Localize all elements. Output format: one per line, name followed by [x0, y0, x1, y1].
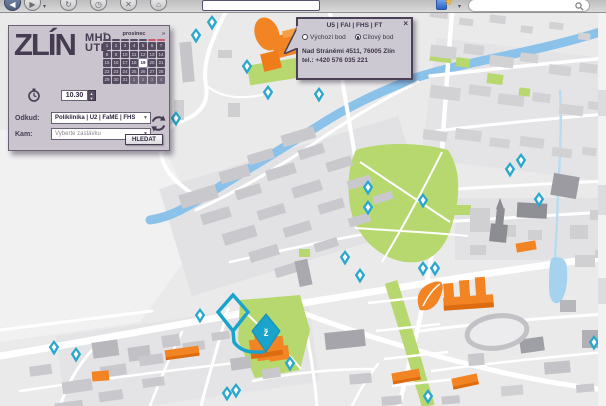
radio-start-icon[interactable] — [302, 34, 308, 40]
calendar-day[interactable]: 21 — [157, 59, 165, 67]
calendar-day[interactable]: 13 — [148, 51, 156, 59]
calendar-weekday-row — [103, 39, 165, 41]
favorites-caret-icon[interactable]: ▾ — [458, 3, 461, 10]
radio-end-option[interactable]: Cílový bod — [355, 34, 394, 41]
clock-icon — [27, 88, 41, 103]
time-row: 10.30 ▲▼ — [47, 90, 96, 101]
calendar-day[interactable]: 1 — [103, 42, 111, 50]
calendar-day[interactable]: 3 — [148, 76, 156, 84]
radio-start-option[interactable]: Výchozí bod — [302, 34, 346, 41]
swap-directions-button[interactable] — [150, 114, 167, 133]
calendar-day[interactable]: 30 — [112, 76, 120, 84]
calendar-day[interactable]: 25 — [130, 68, 138, 76]
star-icon: ★ — [444, 0, 453, 8]
from-select[interactable]: Poliklinika | U2 | FaME | FHS ▼ — [51, 112, 151, 124]
pin-label: ž — [264, 328, 269, 339]
calendar-day[interactable]: 5 — [139, 42, 147, 50]
building-orange-g[interactable] — [92, 370, 110, 381]
browser-toolbar: ◀ ▶ ▾ ↻ ◷ ✕ ⌂ ★ ▾ — [0, 0, 606, 13]
weekday-mark — [148, 39, 156, 41]
calendar-day[interactable]: 11 — [130, 51, 138, 59]
calendar: « prosinec » 123456789101112131415161718… — [103, 30, 165, 84]
calendar-day[interactable]: 7 — [157, 42, 165, 50]
weekday-mark — [112, 39, 120, 41]
calendar-day[interactable]: 20 — [148, 59, 156, 67]
calendar-day[interactable]: 24 — [121, 68, 129, 76]
forward-caret-icon[interactable]: ▾ — [43, 3, 46, 10]
close-icon[interactable]: × — [403, 20, 408, 28]
weekday-mark — [121, 39, 129, 41]
calendar-day[interactable]: 14 — [157, 51, 165, 59]
calendar-prev-button[interactable]: « — [103, 31, 106, 37]
from-row: Odkud: Poliklinika | U2 | FaME | FHS ▼ — [15, 112, 151, 124]
calendar-day[interactable]: 4 — [157, 76, 165, 84]
stop-info-popup: U5 | FAI | FHS | FT × Výchozí bod Cílový… — [296, 17, 413, 80]
planner-panel: ZLÍN MHDUTB « prosinec » 123456789101112… — [8, 25, 170, 151]
calendar-day[interactable]: 3 — [121, 42, 129, 50]
calendar-day[interactable]: 29 — [103, 76, 111, 84]
back-button[interactable]: ◀ — [4, 0, 21, 11]
weekday-mark — [139, 39, 147, 41]
calendar-day[interactable]: 2 — [112, 42, 120, 50]
popup-phone: tel.: +420 576 035 221 — [302, 56, 407, 65]
search-icon — [575, 2, 584, 11]
calendar-day[interactable]: 19 — [139, 59, 147, 67]
calendar-day[interactable]: 4 — [130, 42, 138, 50]
history-button[interactable]: ◷ — [90, 0, 107, 11]
to-label: Kam: — [15, 131, 51, 138]
time-input[interactable]: 10.30 — [61, 90, 88, 101]
search-submit-button[interactable]: HLEDAT — [125, 134, 163, 145]
calendar-day[interactable]: 6 — [148, 42, 156, 50]
time-spinner[interactable]: ▲▼ — [88, 90, 96, 101]
calendar-day[interactable]: 22 — [103, 68, 111, 76]
from-label: Odkud: — [15, 115, 51, 122]
popup-title: U5 | FAI | FHS | FT — [302, 22, 407, 29]
calendar-next-button[interactable]: » — [162, 31, 165, 37]
search-input[interactable] — [468, 0, 590, 12]
calendar-day[interactable]: 12 — [139, 51, 147, 59]
forward-button[interactable]: ▶ — [24, 0, 41, 11]
calendar-day[interactable]: 16 — [112, 59, 120, 67]
calendar-day[interactable]: 9 — [112, 51, 120, 59]
calendar-grid: 1234567891011121314151617181920212223242… — [103, 42, 165, 84]
calendar-day[interactable]: 2 — [139, 76, 147, 84]
popup-address: Nad Stráněmi 4511, 76005 Zlín — [302, 47, 407, 56]
weekday-mark — [103, 39, 111, 41]
calendar-day[interactable]: 8 — [103, 51, 111, 59]
dropdown-arrow-icon: ▼ — [143, 113, 148, 124]
scrollbar[interactable] — [598, 13, 606, 406]
calendar-day[interactable]: 26 — [139, 68, 147, 76]
app-window: { "toolbar": { "back": "◀", "forward": "… — [0, 0, 606, 406]
radio-end-icon[interactable] — [355, 34, 361, 40]
calendar-day[interactable]: 15 — [103, 59, 111, 67]
calendar-day[interactable]: 31 — [121, 76, 129, 84]
calendar-month-label: prosinec — [123, 31, 146, 37]
calendar-day[interactable]: 1 — [130, 76, 138, 84]
popup-tail — [284, 24, 298, 54]
calendar-day[interactable]: 23 — [112, 68, 120, 76]
home-button[interactable]: ⌂ — [150, 0, 167, 11]
calendar-day[interactable]: 27 — [148, 68, 156, 76]
stop-button[interactable]: ✕ — [120, 0, 137, 11]
calendar-day[interactable]: 18 — [130, 59, 138, 67]
address-bar[interactable] — [202, 0, 320, 11]
weekday-mark — [130, 39, 138, 41]
calendar-day[interactable]: 28 — [157, 68, 165, 76]
logo-zlin: ZLÍN — [14, 31, 75, 59]
calendar-day[interactable]: 10 — [121, 51, 129, 59]
calendar-day[interactable]: 17 — [121, 59, 129, 67]
weekday-mark — [157, 39, 165, 41]
refresh-button[interactable]: ↻ — [60, 0, 77, 11]
